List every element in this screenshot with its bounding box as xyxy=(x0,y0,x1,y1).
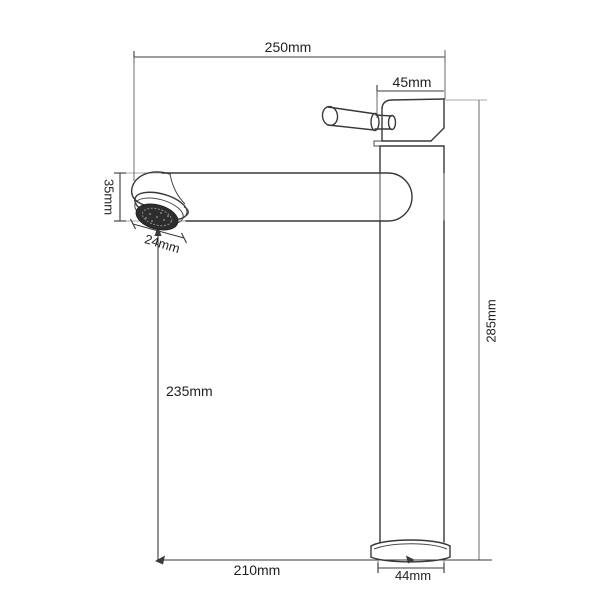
extension-lines xyxy=(114,100,487,572)
head-hook-outer xyxy=(132,172,170,205)
lever-joint-ring xyxy=(371,114,379,131)
cartridge-housing xyxy=(374,99,444,146)
dim-35: 35mm xyxy=(102,173,126,221)
dim-235: 235mm xyxy=(155,226,213,560)
spout-head xyxy=(132,172,191,235)
diagram-canvas: 250mm 45mm 35mm 285mm 235mm xyxy=(0,0,600,600)
dim-235-label: 235mm xyxy=(166,383,213,399)
lever-neck-top xyxy=(376,115,391,116)
dim-250-label: 250mm xyxy=(265,39,312,55)
base-top-arc xyxy=(371,540,450,546)
spout-outline xyxy=(162,173,412,221)
dim-44-label: 44mm xyxy=(395,568,431,583)
housing-top-edge xyxy=(382,99,444,108)
spout xyxy=(162,173,412,221)
lever-neck-cap xyxy=(389,116,396,130)
dim-250: 250mm xyxy=(134,39,445,181)
dim-35-label: 35mm xyxy=(102,179,117,215)
faucet-body xyxy=(132,99,450,562)
dim-285-label: 285mm xyxy=(483,299,498,342)
housing-base-tab xyxy=(374,141,382,146)
housing-chamfer xyxy=(431,128,444,141)
base-inner-arc xyxy=(374,544,447,549)
riser-column xyxy=(380,146,444,542)
dim-44: 44mm xyxy=(378,563,444,583)
dim-210-arrow-left xyxy=(155,556,165,565)
dim-45-label: 45mm xyxy=(393,74,432,90)
faucet-dimension-drawing: 250mm 45mm 35mm 285mm 235mm xyxy=(0,0,600,600)
dim-45: 45mm xyxy=(377,74,444,118)
dim-24-label: 24mm xyxy=(143,231,182,256)
lever-handle xyxy=(321,106,395,131)
dim-210-label: 210mm xyxy=(234,562,281,578)
dim-210: 210mm xyxy=(155,556,492,579)
lever-bottom-edge xyxy=(328,125,374,130)
